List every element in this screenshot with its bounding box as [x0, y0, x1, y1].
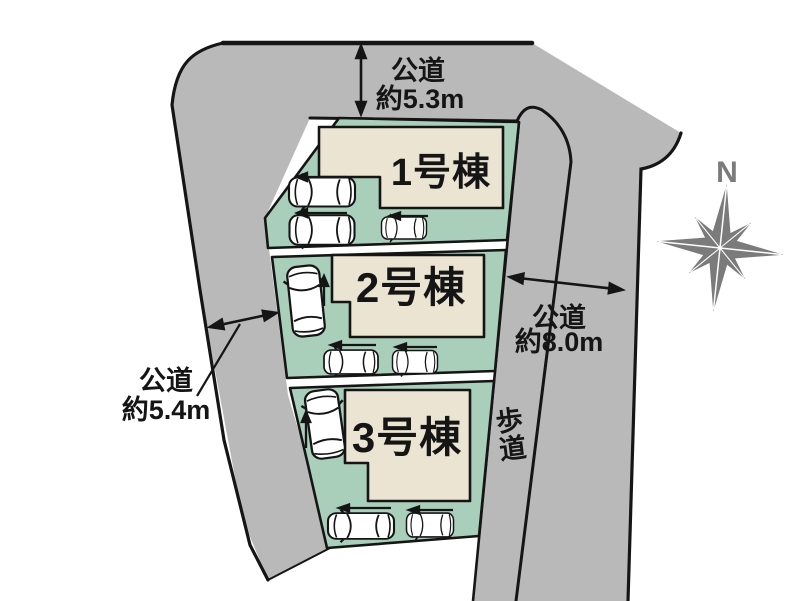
dimension-label-top-road-width: 約5.3m — [376, 83, 465, 114]
car-icon-1 — [289, 174, 355, 211]
dimension-label-right-road-width: 約8.0m — [515, 326, 604, 357]
north-label: N — [716, 156, 738, 189]
compass-rose — [650, 178, 791, 319]
building-1-label: 1号棟 — [391, 152, 491, 194]
car-icon-8 — [328, 510, 394, 542]
dimension-label-left-road-width: 約5.4m — [122, 394, 211, 425]
car-icon-9 — [407, 510, 454, 540]
building-2-label: 2号棟 — [356, 264, 466, 311]
building-3-label: 3号棟 — [352, 414, 462, 461]
dimension-label-top-road-name: 公道 — [391, 55, 445, 86]
sidewalk-label-char-2: 道 — [497, 431, 528, 465]
car-icon-2 — [290, 211, 355, 248]
compass-seams — [652, 180, 788, 316]
car-icon-3 — [382, 214, 427, 242]
dimension-label-left-road-name: 公道 — [139, 365, 193, 396]
car-icon-5 — [324, 347, 378, 377]
site-plan: 1号棟 2号棟 3号棟 公道 約5.3m — [0, 0, 800, 601]
site-plan-svg: 1号棟 2号棟 3号棟 公道 約5.3m — [0, 0, 800, 601]
car-icon-6 — [393, 348, 438, 377]
